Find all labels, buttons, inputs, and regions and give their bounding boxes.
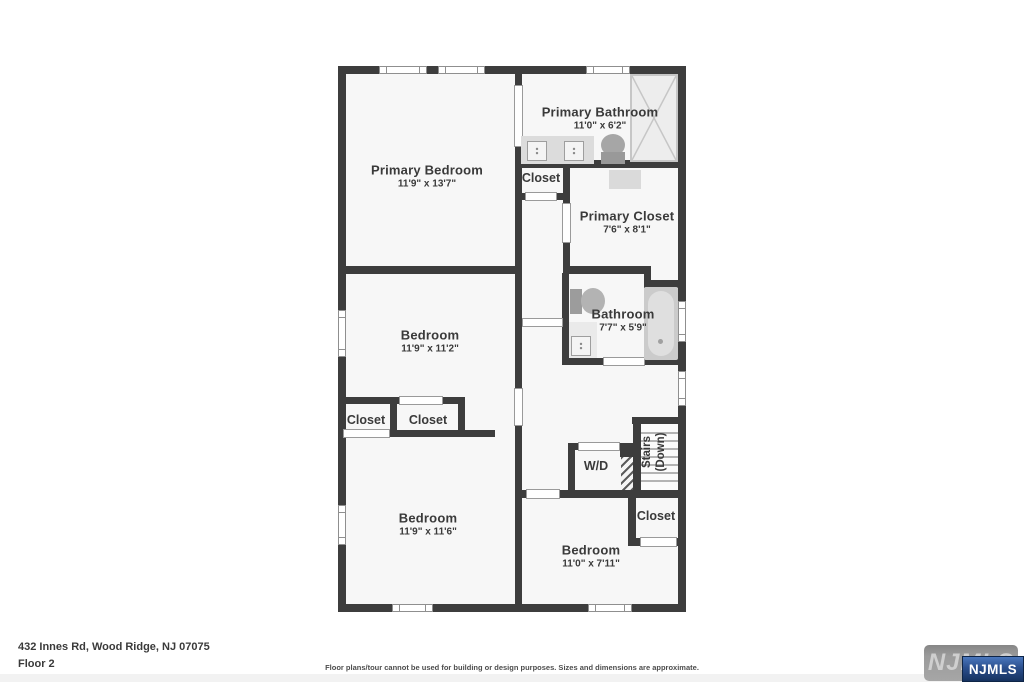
door-hallway — [522, 318, 563, 327]
room-label-primary-bedroom: Primary Bedroom 11'9" x 13'7" — [371, 163, 483, 190]
door-closet-br — [640, 537, 677, 547]
room-label-primary-bathroom: Primary Bathroom 11'0" x 6'2" — [542, 105, 659, 132]
toilet-tank — [601, 152, 625, 164]
room-label-closet-bottom-right: Closet — [637, 509, 675, 523]
door-closet-center — [399, 396, 443, 405]
door-hall-closet — [525, 192, 557, 201]
outer-wall-bottom — [338, 604, 686, 612]
sink-icon — [571, 336, 591, 356]
window-left-2 — [338, 505, 346, 545]
floor-plan-page: Primary Bedroom 11'9" x 13'7" Primary Ba… — [0, 0, 1024, 682]
footer-strip — [0, 674, 1024, 682]
room-label-closet-left: Closet — [347, 413, 385, 427]
property-address: 432 Innes Rd, Wood Ridge, NJ 07075 — [18, 641, 210, 653]
door-bedroom-br — [526, 489, 560, 499]
room-label-hall-closet: Closet — [522, 171, 560, 185]
room-label-bathroom: Bathroom 7'7" x 5'9" — [592, 307, 655, 334]
stairs-hatch — [621, 457, 633, 490]
window-bottom-2 — [588, 604, 632, 612]
window-bottom-1 — [392, 604, 433, 612]
wall-bathroom-left — [562, 273, 569, 365]
sink-icon — [527, 141, 547, 161]
disclaimer-text: Floor plans/tour cannot be used for buil… — [0, 663, 1024, 672]
window-top-3 — [586, 66, 630, 74]
door-closet-left — [343, 429, 390, 438]
sink-icon — [564, 141, 584, 161]
room-label-bedroom-middle: Bedroom 11'9" x 11'2" — [401, 328, 459, 355]
door-bedroom-middle — [514, 388, 523, 426]
door-laundry — [578, 442, 620, 451]
room-label-bedroom-bottom-right: Bedroom 11'0" x 7'11" — [562, 543, 620, 570]
window-top-1 — [379, 66, 427, 74]
room-label-laundry: W/D — [584, 459, 608, 473]
room-label-primary-closet: Primary Closet 7'6" x 8'1" — [580, 209, 675, 236]
wall-stairs-left — [633, 417, 641, 490]
room-label-stairs: Stairs (Down) — [641, 433, 669, 472]
door-primary-closet — [562, 203, 571, 243]
room-label-bedroom-bottom-left: Bedroom 11'9" x 11'6" — [399, 511, 457, 538]
bathtub-drain — [658, 339, 663, 344]
closet-shelf — [609, 170, 641, 189]
wall-primary-closet-bottom — [563, 266, 651, 274]
window-left-1 — [338, 310, 346, 357]
door-bathroom — [603, 357, 645, 366]
window-right-2 — [678, 371, 686, 406]
njmls-badge: NJMLS — [962, 656, 1024, 682]
window-top-2 — [438, 66, 485, 74]
window-right-1 — [678, 301, 686, 342]
room-label-closet-center: Closet — [409, 413, 447, 427]
wall-primary-bedroom-bottom — [338, 266, 522, 274]
